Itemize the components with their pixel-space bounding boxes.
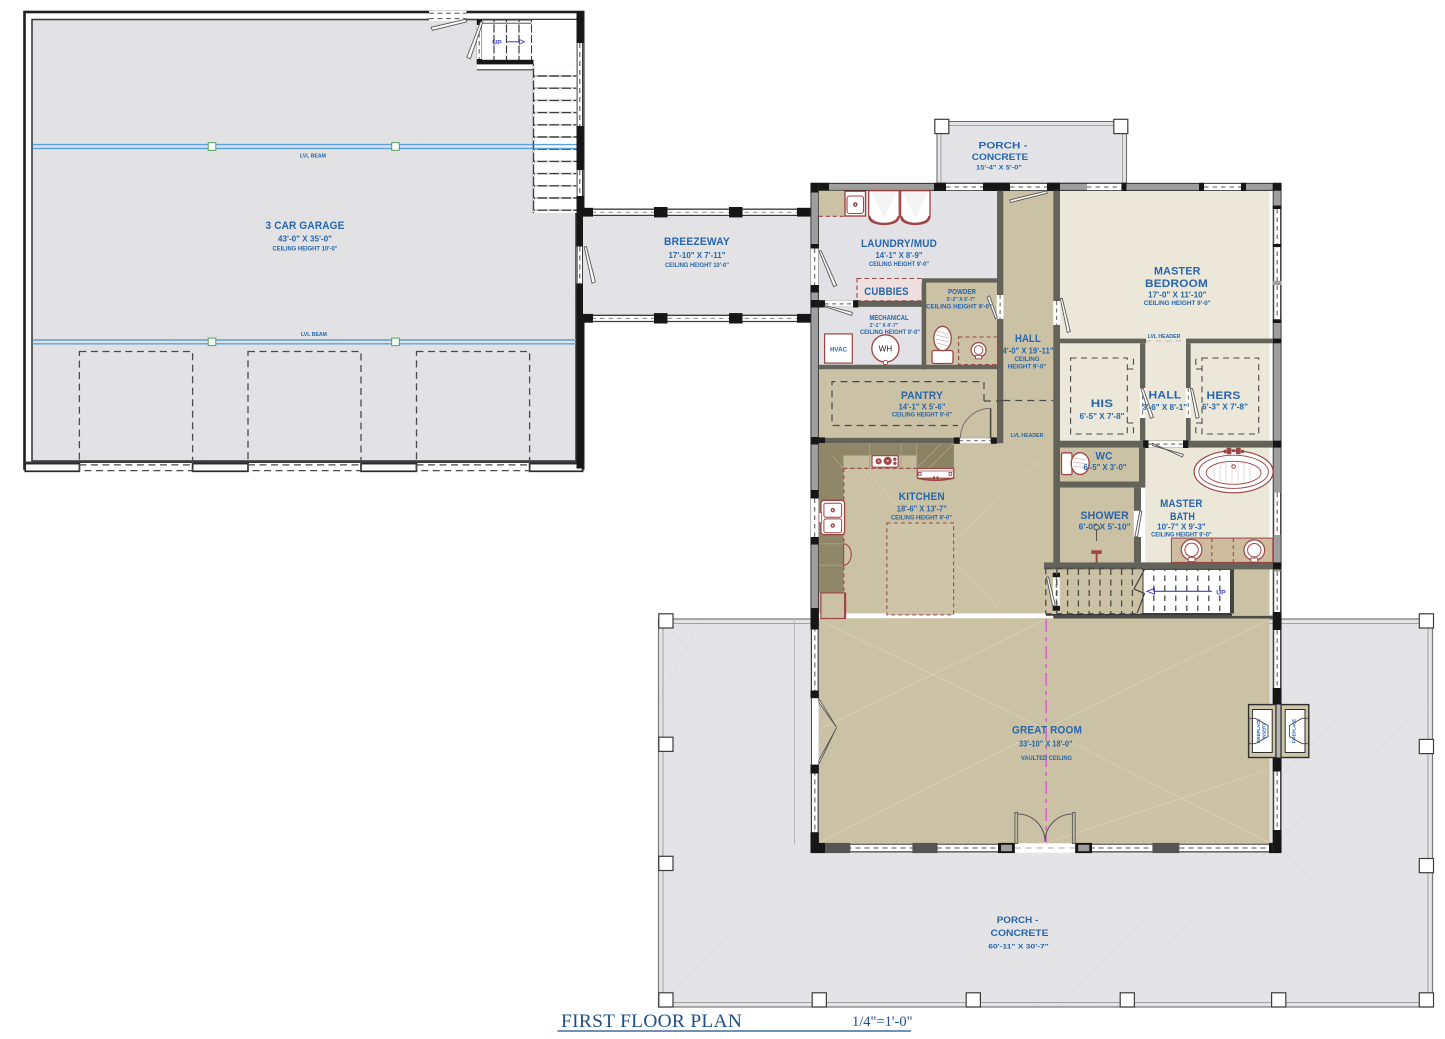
svg-text:POWDER: POWDER [948,287,977,296]
svg-text:HVAC: HVAC [830,347,848,354]
svg-text:CONCRETE: CONCRETE [991,928,1049,939]
svg-text:CUBBIES: CUBBIES [864,286,909,298]
svg-text:18'-6" X 13'-7": 18'-6" X 13'-7" [897,504,947,514]
svg-text:60'-11" X 30'-7": 60'-11" X 30'-7" [988,944,1049,951]
svg-text:17'-10" X 7'-11": 17'-10" X 7'-11" [669,250,726,260]
svg-text:LVL BEAM: LVL BEAM [301,332,327,338]
svg-text:6'-3" X 7'-8": 6'-3" X 7'-8" [1202,402,1248,412]
svg-text:10'-7" X 9'-3": 10'-7" X 9'-3" [1157,522,1206,532]
svg-text:4'-0" X 19'-11": 4'-0" X 19'-11" [1003,346,1054,356]
svg-text:43'-0" X 35'-0": 43'-0" X 35'-0" [278,234,332,244]
svg-text:6'-5" X 7'-8": 6'-5" X 7'-8" [1080,411,1125,421]
svg-text:14'-1" X 5'-6": 14'-1" X 5'-6" [899,402,946,412]
svg-text:MASTER: MASTER [1160,498,1203,510]
svg-text:CEILING HEIGHT 9'-0": CEILING HEIGHT 9'-0" [1144,300,1211,307]
svg-text:6'-5" X 3'-0": 6'-5" X 3'-0" [1084,462,1127,472]
svg-text:LAUNDRY/MUD: LAUNDRY/MUD [861,238,937,250]
svg-text:FIREPLACE: FIREPLACE [1256,719,1261,743]
svg-text:MECHANICAL: MECHANICAL [870,313,909,322]
svg-text:FIREPLACE: FIREPLACE [1292,719,1297,743]
svg-text:3'-6" X 8'-1": 3'-6" X 8'-1" [1142,402,1187,412]
svg-text:17'-0" X 11'-10": 17'-0" X 11'-10" [1148,290,1207,300]
svg-text:HIS: HIS [1091,398,1114,410]
svg-text:HEIGHT 9'-0": HEIGHT 9'-0" [1008,364,1047,371]
svg-text:CEILING HEIGHT 9'-0": CEILING HEIGHT 9'-0" [869,261,929,268]
svg-text:BREEZEWAY: BREEZEWAY [664,236,730,248]
svg-text:WC: WC [1096,451,1113,463]
svg-text:FIRST FLOOR PLAN: FIRST FLOOR PLAN [561,1011,742,1032]
svg-text:SHOWER: SHOWER [1080,510,1129,522]
svg-text:15'-4" X 5'-0": 15'-4" X 5'-0" [976,165,1022,172]
svg-text:MASTER: MASTER [1154,266,1201,278]
svg-text:CEILING HEIGHT 9'-0": CEILING HEIGHT 9'-0" [891,515,952,522]
svg-text:PANTRY: PANTRY [901,390,943,402]
svg-text:3 CAR GARAGE: 3 CAR GARAGE [266,220,345,232]
svg-text:PORCH -: PORCH - [979,141,1028,152]
svg-text:UP: UP [492,40,502,47]
svg-text:CEILING HEIGHT 9'-0": CEILING HEIGHT 9'-0" [860,329,920,336]
svg-text:LVL HEADER: LVL HEADER [1148,334,1181,340]
svg-text:14'-1" X 8'-9": 14'-1" X 8'-9" [876,250,923,260]
svg-text:PORCH -: PORCH - [997,915,1039,926]
svg-text:HERS: HERS [1207,390,1241,402]
svg-text:6'-0" X 5'-10": 6'-0" X 5'-10" [1079,522,1131,532]
svg-text:CEILING HEIGHT 9'-0": CEILING HEIGHT 9'-0" [892,412,952,419]
svg-text:CEILING HEIGHT 9'-0": CEILING HEIGHT 9'-0" [926,304,992,311]
svg-text:BEDROOM: BEDROOM [1145,278,1208,290]
svg-text:CEILING: CEILING [1014,356,1039,363]
svg-text:CEILING HEIGHT 10'-0": CEILING HEIGHT 10'-0" [665,262,729,269]
svg-text:KITCHEN: KITCHEN [899,491,945,503]
svg-text:CONCRETE: CONCRETE [972,152,1029,163]
svg-text:5'-2" X 6'-7": 5'-2" X 6'-7" [947,297,976,303]
svg-text:33'-10" X 18'-0": 33'-10" X 18'-0" [1019,739,1073,749]
svg-text:LVL HEADER: LVL HEADER [1011,433,1044,439]
svg-text:HALL: HALL [1015,333,1041,345]
svg-text:1/4"=1'-0": 1/4"=1'-0" [852,1014,913,1030]
svg-text:VAULTED CEILING: VAULTED CEILING [1021,755,1072,762]
svg-text:LVL BEAM: LVL BEAM [300,154,326,160]
svg-text:GREAT ROOM: GREAT ROOM [1012,725,1082,737]
svg-text:WH: WH [879,345,893,354]
svg-text:CEILING HEIGHT 9'-0": CEILING HEIGHT 9'-0" [1151,532,1212,539]
svg-text:UP: UP [1216,589,1226,596]
svg-text:CEILING HEIGHT 10'-0": CEILING HEIGHT 10'-0" [273,246,338,253]
svg-text:INSERT: INSERT [1262,723,1267,739]
svg-text:HALL: HALL [1149,390,1182,402]
